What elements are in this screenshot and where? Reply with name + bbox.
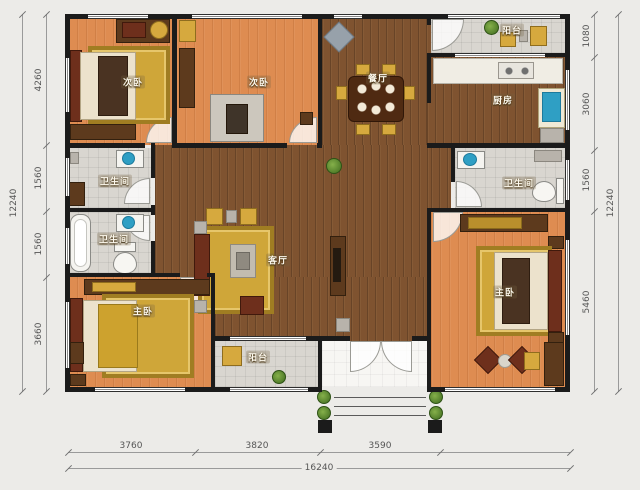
room-label-dining: 餐厅 <box>366 72 390 85</box>
dining-chair <box>356 124 370 135</box>
wall-living-porch-a <box>322 336 350 341</box>
wall-n-dining <box>318 17 322 148</box>
dim-label-right-2: 1560 <box>582 169 592 192</box>
entry-step <box>334 415 426 416</box>
window-left-bath1 <box>65 158 70 196</box>
wall-bath-e-west <box>451 148 455 182</box>
window-bottom-se <box>445 387 555 392</box>
floor-hall-nook <box>431 148 451 208</box>
dining-chair <box>382 124 396 135</box>
basin-bowl <box>122 152 135 165</box>
wall-nw-n <box>172 17 177 145</box>
window-balcony-kitchen <box>455 53 545 57</box>
basin-bowl <box>463 153 477 166</box>
tv <box>333 248 341 282</box>
bathtub-inner <box>74 219 87 267</box>
room-label-bath-w1: 卫生间 <box>98 175 132 188</box>
wardrobe-trim <box>92 282 136 292</box>
toilet-tank <box>556 178 564 204</box>
bed-headboard <box>548 250 562 332</box>
room-label-kitchen: 厨房 <box>491 94 515 107</box>
dim-tick <box>567 449 574 456</box>
window-right-se <box>565 240 570 335</box>
balcony-chair <box>222 346 242 366</box>
window-top-dining <box>334 14 362 19</box>
dim-label-bottom-1: 3820 <box>246 441 269 451</box>
room-label-living: 客厅 <box>266 254 290 267</box>
room-label-balcony-ne: 阳台 <box>500 24 524 37</box>
dining-plates <box>351 79 401 119</box>
dim-label-right-3: 5460 <box>582 291 592 314</box>
room-label-bedroom-se: 主卧 <box>493 286 517 299</box>
dim-line-left-segments <box>46 14 47 392</box>
dining-chair <box>404 86 415 100</box>
entry-step <box>334 406 426 407</box>
window-balcony-s-door <box>230 336 306 341</box>
room-label-bedroom-sw: 主卧 <box>131 305 155 318</box>
dim-tick <box>19 388 26 395</box>
plant-icon <box>317 390 331 404</box>
dim-tick <box>615 388 622 395</box>
dining-chair <box>336 86 347 100</box>
wall-bedrooms-south-b <box>172 143 287 148</box>
dresser-box <box>122 22 146 38</box>
room-label-bath-w2: 卫生间 <box>97 233 131 246</box>
plant-icon <box>429 390 443 404</box>
entry-post <box>318 420 332 433</box>
wall-bedrooms-south-a <box>68 143 145 148</box>
sink-icon <box>542 92 561 122</box>
window-right-bath-e <box>565 160 570 200</box>
washing-machine <box>69 182 85 206</box>
dim-label-right-1: 3060 <box>582 93 592 116</box>
dim-label-right-0: 1080 <box>582 25 592 48</box>
plant-icon <box>429 406 443 420</box>
window-right-kitchen <box>565 70 570 130</box>
dim-line-right-total <box>618 14 619 392</box>
wall-bedroom-sw-east <box>211 277 215 392</box>
toilet-icon <box>113 252 137 274</box>
dresser <box>70 124 136 140</box>
dim-line-left-total <box>22 14 23 392</box>
plant-stand <box>300 112 313 125</box>
room-label-bath-e: 卫生间 <box>502 177 536 190</box>
wardrobe-trim <box>468 217 522 229</box>
side-table <box>194 221 207 234</box>
coffee-table-top <box>236 252 250 270</box>
nightstand <box>70 374 86 386</box>
dim-label-left-1: 1560 <box>34 167 44 190</box>
desk-chair <box>226 104 248 134</box>
wall-living-se <box>427 208 431 392</box>
entry-post <box>428 420 442 433</box>
bench <box>70 342 84 364</box>
floor-plan-image: 次卧 次卧 餐厅 阳台 厨房 卫生间 卫生间 卫生间 客厅 主卧 阳台 主卧 1… <box>0 0 640 490</box>
balcony-chair <box>530 26 547 46</box>
desk <box>544 342 564 386</box>
dim-tick <box>43 388 50 395</box>
plant-icon <box>326 158 342 174</box>
lounge-chair <box>240 208 257 225</box>
dim-label-bottom-2: 3590 <box>369 441 392 451</box>
dim-label-right-total: 12240 <box>606 189 616 218</box>
dim-label-left-3: 3660 <box>34 323 44 346</box>
window-top-n <box>192 14 302 19</box>
window-left-bath2 <box>65 228 70 264</box>
window-bottom-sw <box>95 387 185 392</box>
plant-icon <box>317 406 331 420</box>
window-left-sw <box>65 302 70 368</box>
side-table <box>194 300 207 313</box>
wall-bedroom-sw-north-a <box>68 273 180 277</box>
room-label-bedroom-nw: 次卧 <box>121 76 145 89</box>
dim-label-bottom-0: 3760 <box>120 441 143 451</box>
stove-icon <box>498 62 534 79</box>
dim-tick <box>591 388 598 395</box>
wall-kitchen-south <box>427 143 567 148</box>
mirror <box>150 21 168 39</box>
wall-baths-east-c <box>151 241 155 277</box>
wall-dining-kitchen <box>427 53 431 103</box>
plant-icon <box>272 370 286 384</box>
side-table <box>226 210 237 223</box>
dim-label-left-0: 4260 <box>34 69 44 92</box>
window-top-nw <box>88 14 148 19</box>
dim-line-right-segments <box>594 14 595 392</box>
room-label-bedroom-n: 次卧 <box>247 76 271 89</box>
wall-living-porch-b <box>412 336 427 341</box>
armchair <box>240 296 264 315</box>
tall-cabinet <box>179 48 195 108</box>
cabinet-small <box>336 318 350 332</box>
fridge <box>540 128 564 143</box>
wall-dining-balcony-stub <box>427 17 431 25</box>
bath-shelf <box>534 150 562 162</box>
dim-tick <box>567 465 574 472</box>
wall-bedroom-se-north <box>427 208 567 212</box>
dim-label-left-2: 1560 <box>34 233 44 256</box>
window-left-nw <box>65 58 70 112</box>
window-bottom-balcony-s <box>230 387 308 392</box>
cabinet <box>179 20 196 42</box>
dim-label-bottom-total: 16240 <box>302 463 337 473</box>
wall-bath-divider <box>68 208 155 212</box>
small-sink <box>70 152 79 164</box>
dim-label-left-total: 12240 <box>9 189 19 218</box>
room-label-balcony-s: 阳台 <box>246 351 270 364</box>
entry-step <box>334 397 426 398</box>
lounge-chair <box>206 208 223 225</box>
wall-balcony-porch <box>318 341 322 392</box>
desk-chair <box>524 352 540 370</box>
wall-baths-east-a <box>151 143 155 178</box>
plant-icon <box>484 20 499 35</box>
window-top-balcony-ne <box>448 14 560 19</box>
basin-bowl <box>122 216 135 229</box>
